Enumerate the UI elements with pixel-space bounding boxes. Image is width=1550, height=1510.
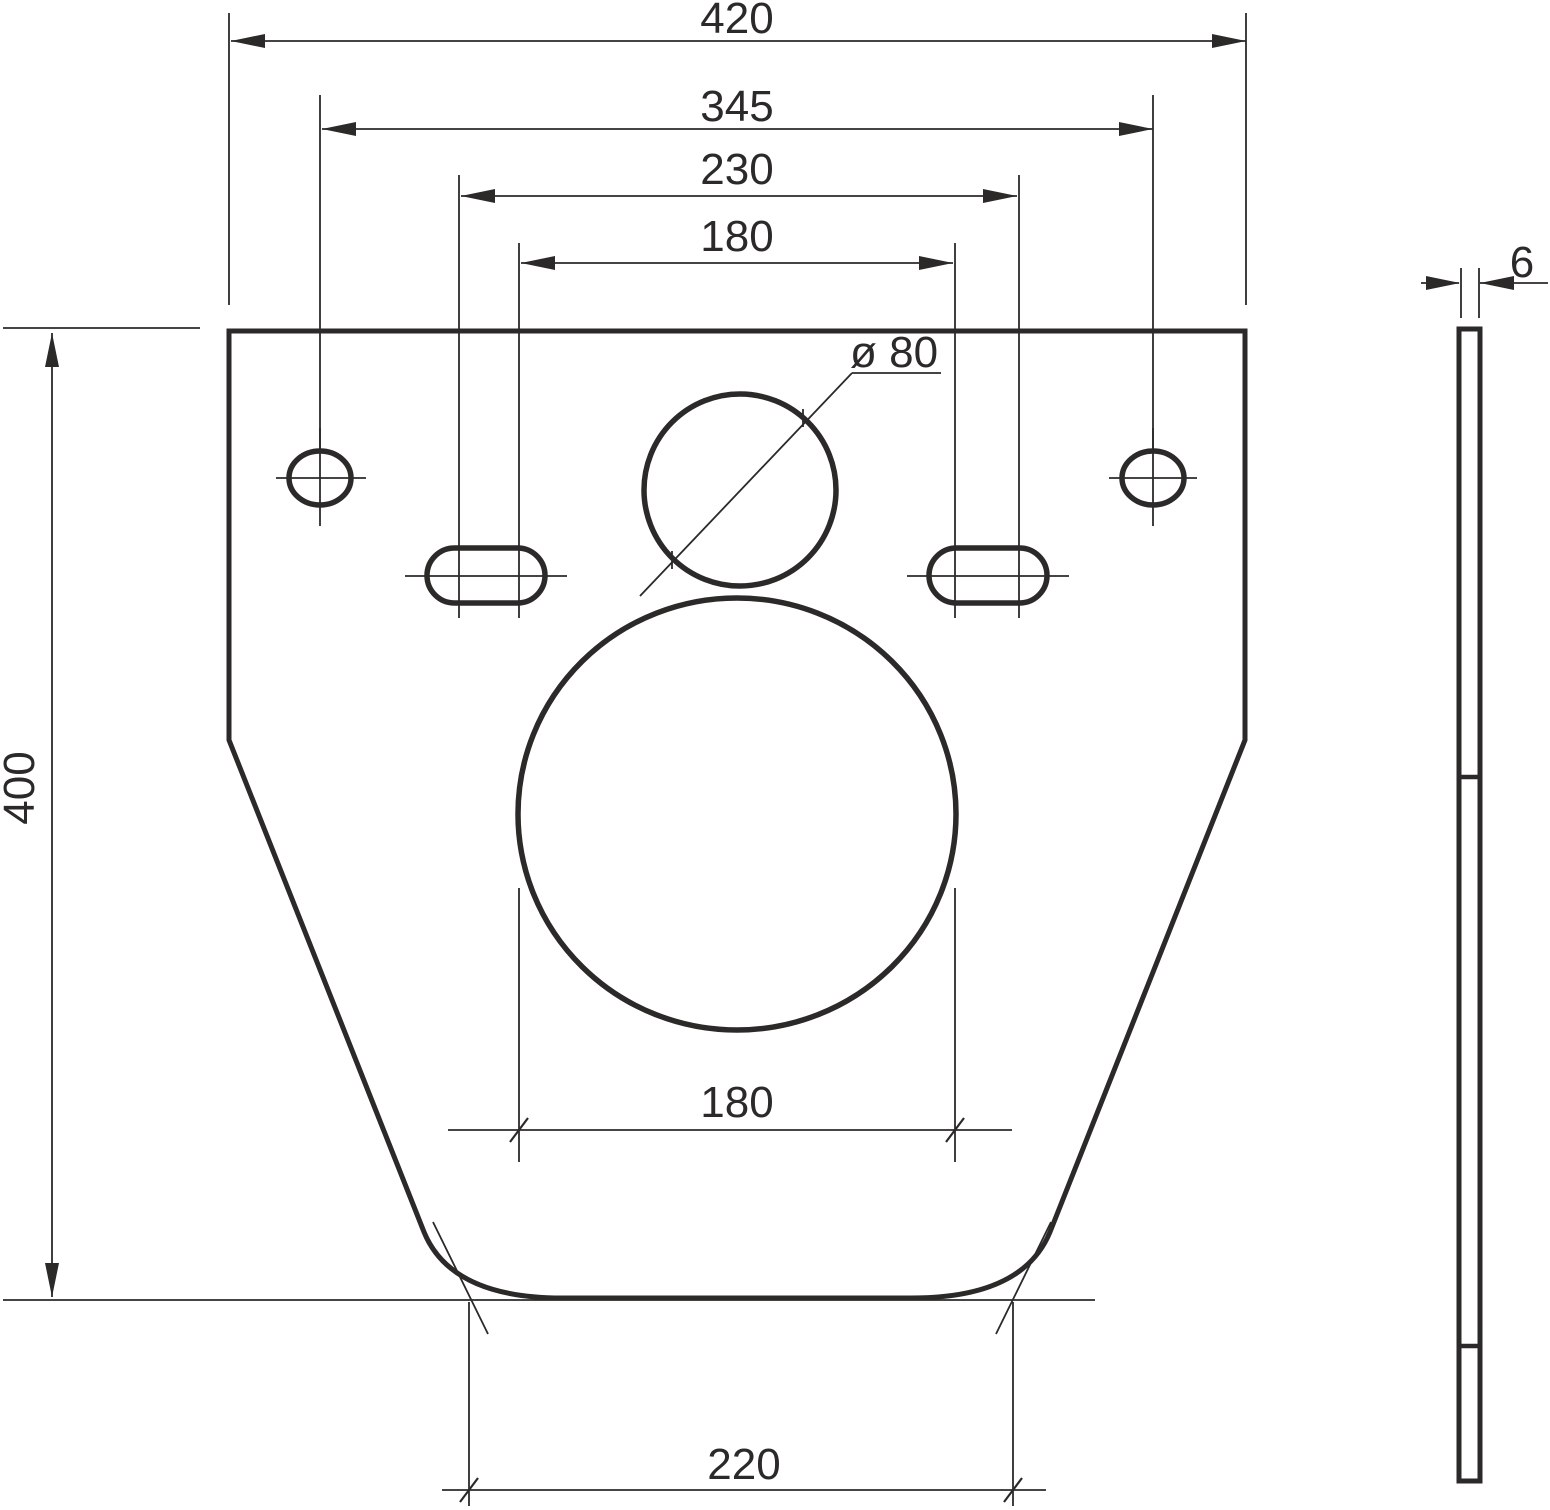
dim-label-top-opening-diameter: ø 80	[850, 328, 938, 377]
arrow-180-right	[919, 256, 953, 270]
arrow-180-left	[521, 256, 555, 270]
front-view	[229, 331, 1245, 1298]
arrow-230-left	[461, 189, 495, 203]
dimension-lines	[52, 41, 1548, 1490]
arrow-400-up	[45, 333, 59, 367]
arrow-420-right	[1212, 34, 1246, 48]
profile-outline	[1459, 329, 1480, 1481]
arrow-345-right	[1119, 122, 1153, 136]
dim-label-thickness: 6	[1510, 238, 1534, 287]
dim-label-overall-height: 400	[0, 751, 44, 824]
dim-label-bottom-width: 220	[707, 1440, 780, 1489]
side-view	[1457, 329, 1482, 1481]
arrow-230-right	[983, 189, 1017, 203]
arrow-6-left	[1426, 276, 1460, 290]
main-opening-180	[518, 598, 956, 1030]
dim-label-overall-width: 420	[700, 0, 773, 43]
arrow-420-left	[231, 34, 265, 48]
dim-label-hole-spacing: 345	[700, 82, 773, 131]
dim-label-slot-spacing-inner: 180	[700, 212, 773, 261]
arrowheads	[45, 34, 1514, 1297]
arrow-400-down	[45, 1263, 59, 1297]
arrow-345-left	[322, 122, 356, 136]
plate-outline	[229, 331, 1245, 1298]
dim-label-slot-spacing-outer: 230	[700, 145, 773, 194]
technical-drawing-page: 420 345 230 180 ø 80 400 180 220 6	[0, 0, 1550, 1510]
crosshairs	[276, 428, 1197, 576]
technical-drawing-canvas: 420 345 230 180 ø 80 400 180 220 6	[0, 0, 1550, 1510]
dim-label-main-opening-width: 180	[700, 1078, 773, 1127]
